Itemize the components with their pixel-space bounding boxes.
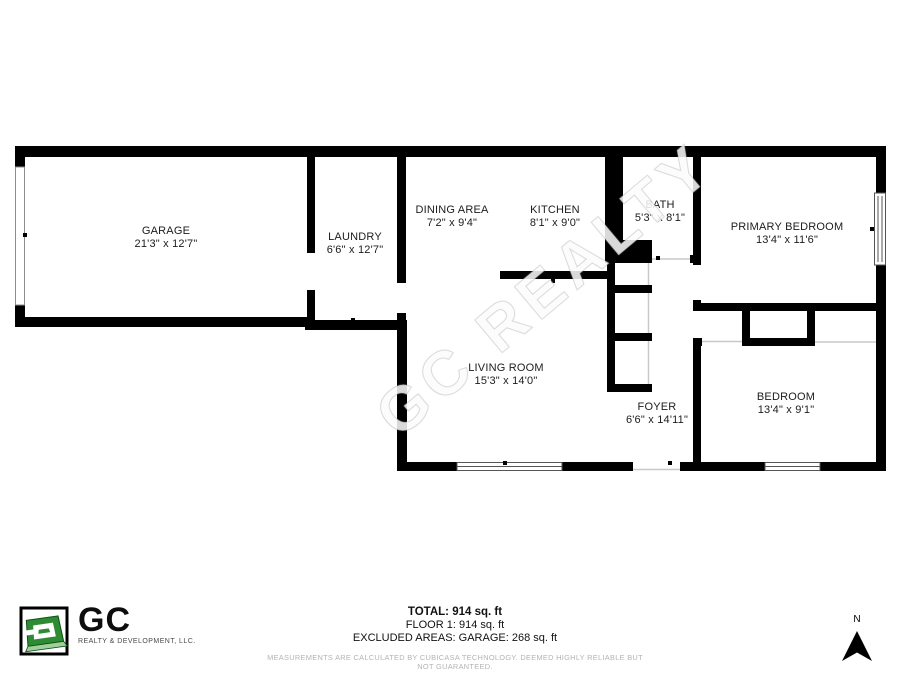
gc-realty-logo: GC REALTY & DEVELOPMENT, LLC.: [20, 605, 196, 657]
north-arrow-icon: [842, 631, 872, 661]
room-name: KITCHEN: [530, 204, 580, 217]
room-label-living-room: LIVING ROOM 15'3" x 14'0": [468, 362, 544, 388]
room-dimensions: 6'6" x 14'11": [626, 414, 688, 427]
primary-bedroom-window: [875, 193, 886, 265]
room-name: GARAGE: [135, 225, 198, 238]
room-name: PRIMARY BEDROOM: [731, 221, 844, 234]
room-label-primary-bedroom: PRIMARY BEDROOM 13'4" x 11'6": [731, 221, 844, 247]
room-label-bedroom: BEDROOM 13'4" x 9'1": [757, 391, 815, 417]
room-name: BEDROOM: [757, 391, 815, 404]
logo-brand: GC: [78, 605, 196, 636]
room-dimensions: 21'3" x 12'7": [135, 238, 198, 251]
room-label-laundry: LAUNDRY 6'6" x 12'7": [327, 231, 384, 257]
room-label-garage: GARAGE 21'3" x 12'7": [135, 225, 198, 251]
room-dimensions: 8'1" x 9'0": [530, 217, 580, 230]
room-dimensions: 5'3" x 8'1": [635, 212, 685, 225]
room-dimensions: 7'2" x 9'4": [415, 217, 488, 230]
room-name: DINING AREA: [415, 204, 488, 217]
floor-area-text: FLOOR 1: 914 sq. ft: [260, 619, 650, 632]
room-dimensions: 6'6" x 12'7": [327, 244, 384, 257]
compass: N: [836, 614, 878, 626]
room-dimensions: 13'4" x 11'6": [731, 234, 844, 247]
room-name: BATH: [635, 199, 685, 212]
floorplan-drawing: [0, 0, 900, 675]
room-label-bath: BATH 5'3" x 8'1": [635, 199, 685, 225]
walls-group: [15, 146, 886, 471]
room-dimensions: 15'3" x 14'0": [468, 375, 544, 388]
disclaimer-text: MEASUREMENTS ARE CALCULATED BY CUBICASA …: [260, 653, 650, 671]
room-name: LIVING ROOM: [468, 362, 544, 375]
excluded-area-text: EXCLUDED AREAS: GARAGE: 268 sq. ft: [260, 632, 650, 645]
compass-north-label: N: [836, 614, 878, 626]
door-openings-group: [633, 259, 876, 470]
room-label-kitchen: KITCHEN 8'1" x 9'0": [530, 204, 580, 230]
room-label-foyer: FOYER 6'6" x 14'11": [626, 401, 688, 427]
area-summary: TOTAL: 914 sq. ft FLOOR 1: 914 sq. ft EX…: [260, 606, 650, 671]
room-dimensions: 13'4" x 9'1": [757, 404, 815, 417]
room-name: LAUNDRY: [327, 231, 384, 244]
room-name: FOYER: [626, 401, 688, 414]
room-label-dining-area: DINING AREA 7'2" x 9'4": [415, 204, 488, 230]
logo-text-block: GC REALTY & DEVELOPMENT, LLC.: [78, 605, 196, 645]
total-area-text: TOTAL: 914 sq. ft: [260, 606, 650, 619]
floorplan-page: { "watermark": { "text": "GC REALTY" }, …: [0, 0, 900, 675]
logo-spacer: [20, 605, 70, 657]
